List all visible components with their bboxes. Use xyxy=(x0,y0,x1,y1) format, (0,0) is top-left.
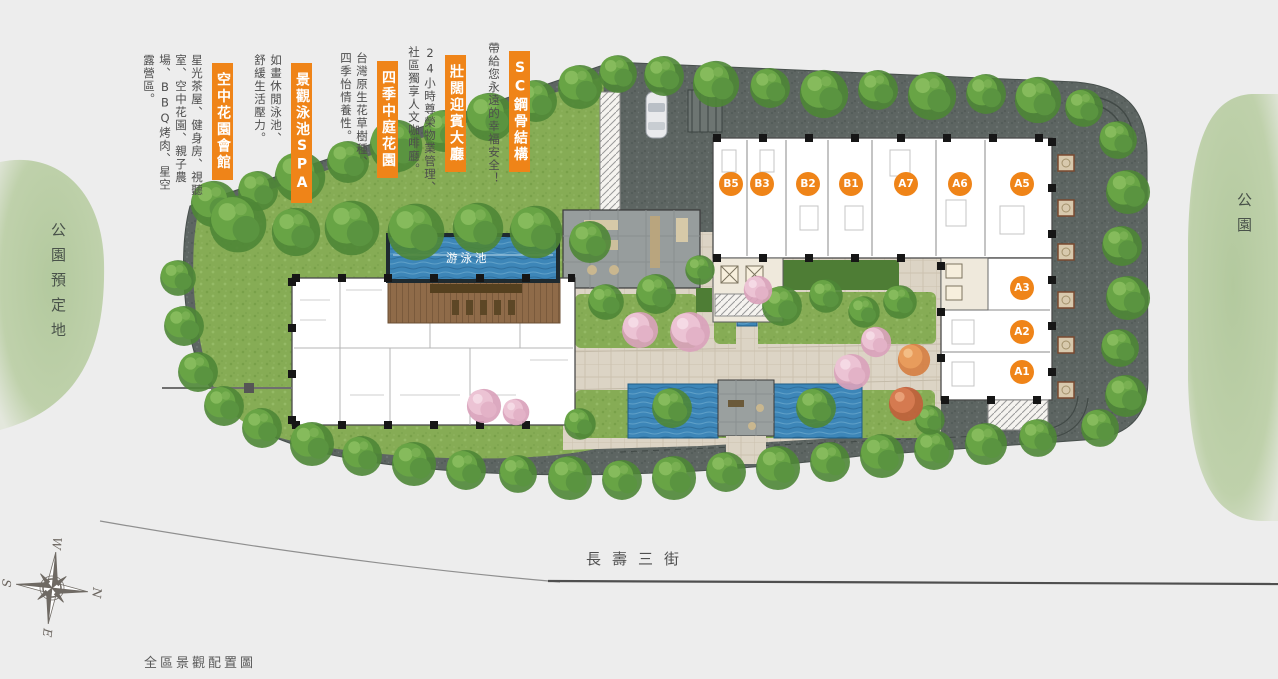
site-plan-page: N E S W 星光茶屋、健身房、視聽室、空中花園、親子農場、BBQ烤肉、星空露… xyxy=(0,0,1278,679)
annotation-desc: 星光茶屋、健身房、視聽室、空中花園、親子農場、BBQ烤肉、星空露營區。 xyxy=(141,54,205,204)
unit-badge-b3: B3 xyxy=(750,172,774,196)
deck-bar-table xyxy=(430,284,522,293)
annotation-title: 四季中庭花園 xyxy=(377,61,398,178)
annotation-title: SC鋼骨結構 xyxy=(509,51,530,172)
residential-building-top xyxy=(713,138,1052,258)
annotation-title: 景觀泳池SPA xyxy=(291,63,312,203)
street-edge-line xyxy=(100,521,560,582)
park-right-label: 公園 xyxy=(1234,192,1255,256)
park-right-area xyxy=(1188,94,1278,521)
annotation-title: 空中花園會館 xyxy=(212,63,233,180)
unit-badge-a5: A5 xyxy=(1010,172,1034,196)
unit-badge-b1: B1 xyxy=(839,172,863,196)
street-edge-line-2 xyxy=(548,581,1278,584)
annotation-desc: 台灣原生花草樹種、四季怡情養性。 xyxy=(338,52,370,177)
unit-badge-b5: B5 xyxy=(719,172,743,196)
unit-badge-a6: A6 xyxy=(948,172,972,196)
car-icon xyxy=(646,92,667,138)
annotation-sc-structure: 帶給您永遠的幸福安全！ SC鋼骨結構 xyxy=(486,42,530,197)
annotation-title: 壯闊迎賓大廳 xyxy=(445,55,466,172)
compass-n: N xyxy=(89,586,104,599)
annotation-grand-lobby: 24小時尊榮物業管理、社區獨享人文咖啡廳。 壯闊迎賓大廳 xyxy=(406,46,466,198)
plan-caption: 全區景觀配置圖 xyxy=(144,652,256,671)
compass-w: W xyxy=(49,536,64,551)
unit-badge-a1: A1 xyxy=(1010,360,1034,384)
park-left-label: 公園預定地 xyxy=(48,222,69,362)
compass-icon: N E S W xyxy=(0,532,109,643)
annotation-desc: 如畫休閒泳池、舒緩生活壓力。 xyxy=(252,54,284,154)
annotation-desc: 24小時尊榮物業管理、社區獨享人文咖啡廳。 xyxy=(406,46,438,198)
compass-e: E xyxy=(40,627,55,638)
unit-badge-a3: A3 xyxy=(1010,276,1034,300)
central-pavilion xyxy=(718,380,774,436)
pool-label: 游泳池 xyxy=(446,250,490,266)
annotation-courtyard-garden: 台灣原生花草樹種、四季怡情養性。 四季中庭花園 xyxy=(338,52,398,178)
unit-badge-a2: A2 xyxy=(1010,320,1034,344)
street-label: 長壽三街 xyxy=(586,548,690,569)
unit-badge-a7: A7 xyxy=(894,172,918,196)
compass-s: S xyxy=(0,578,14,588)
annotation-sky-garden-club: 星光茶屋、健身房、視聽室、空中花園、親子農場、BBQ烤肉、星空露營區。 空中花園… xyxy=(141,54,233,204)
annotation-pool-spa: 如畫休閒泳池、舒緩生活壓力。 景觀泳池SPA xyxy=(252,54,312,203)
deck-planter xyxy=(696,288,712,312)
unit-badge-b2: B2 xyxy=(796,172,820,196)
annotation-desc: 帶給您永遠的幸福安全！ xyxy=(486,42,502,197)
side-gate xyxy=(244,383,254,393)
